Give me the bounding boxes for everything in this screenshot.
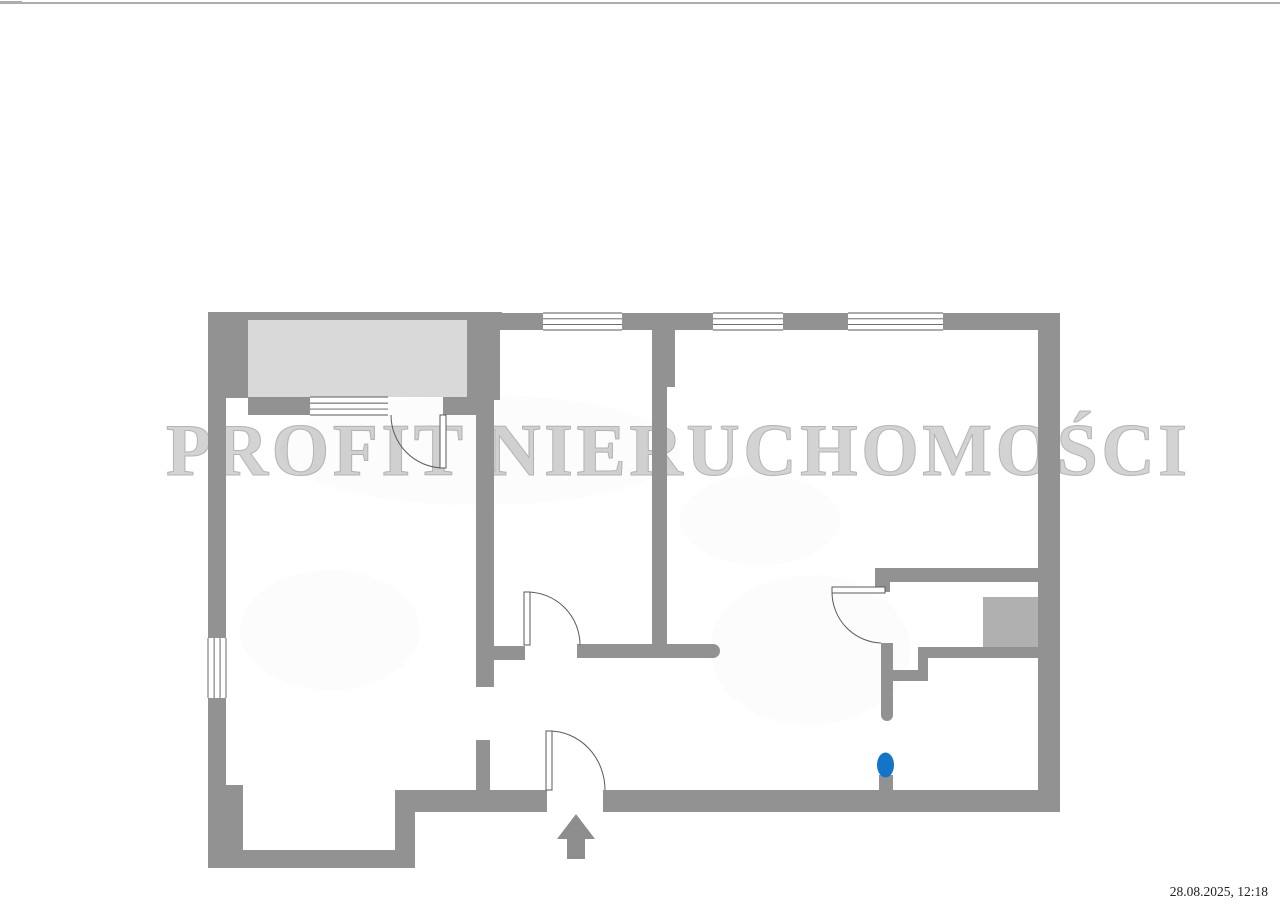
wall-rounded-end <box>706 644 720 658</box>
wall-segment <box>893 670 928 681</box>
scan-timestamp: 28.08.2025, 12:18 <box>1170 884 1268 899</box>
scan-shadow <box>710 575 910 725</box>
wall-segment <box>652 387 667 658</box>
wall-segment <box>467 313 500 400</box>
wall-segment <box>783 313 848 330</box>
wall-segment <box>476 398 494 687</box>
balcony-door-leaf <box>440 415 446 468</box>
wall-segment <box>208 698 226 850</box>
balcony-fill <box>248 320 467 397</box>
wall-segment <box>918 647 1060 658</box>
scan-shadow <box>240 570 420 690</box>
wall-rounded-end <box>881 709 893 721</box>
wall-segment <box>208 398 226 638</box>
wall-segment <box>622 313 713 330</box>
wall-segment <box>226 785 243 850</box>
floor-plan <box>0 0 1280 905</box>
wall-segment <box>248 397 310 415</box>
wall-segment <box>208 312 502 320</box>
window <box>848 313 943 330</box>
scan-artifact-line <box>0 2 1280 4</box>
wall-segment <box>881 643 893 715</box>
window <box>310 397 388 415</box>
wall-segment <box>652 330 675 387</box>
wall-segment <box>603 790 1060 812</box>
scan-shadow <box>680 475 840 565</box>
room-door-leaf <box>524 592 530 645</box>
wall-segment <box>875 568 1060 582</box>
scanned-floorplan-page: PROFIT NIERUCHOMOŚCI 28.08.2025, 12:18 <box>0 0 1280 905</box>
wall-segment <box>208 312 248 398</box>
entrance-door-leaf <box>546 731 552 790</box>
window <box>543 313 622 330</box>
window <box>208 638 226 698</box>
entrance-door-swing-arc <box>549 731 605 790</box>
entrance-arrow <box>557 814 595 859</box>
wall-segment <box>395 790 547 812</box>
window <box>713 313 783 330</box>
wall-segment <box>477 646 525 660</box>
blue-pen-marker <box>877 753 894 778</box>
scan-artifact-line <box>0 1 22 4</box>
bathroom-door-leaf <box>832 587 885 593</box>
wall-segment <box>1038 313 1060 812</box>
wall-segment <box>208 850 415 868</box>
wall-segment <box>577 644 713 658</box>
wall-segment <box>476 740 490 790</box>
shaft-fill <box>983 597 1038 647</box>
room-door-swing-arc <box>527 592 580 645</box>
